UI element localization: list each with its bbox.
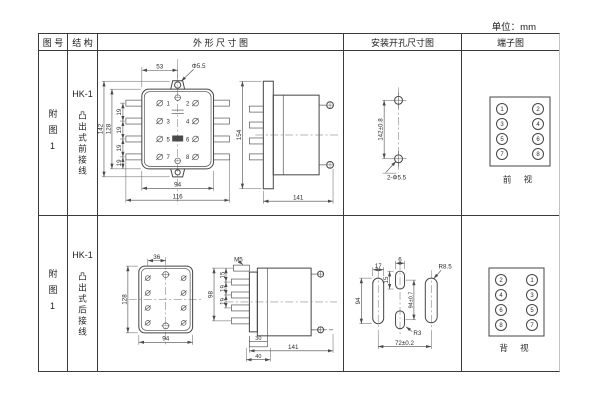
cell-structure-row2: HK-1 凸出式后接线	[68, 216, 98, 371]
dim-pitch: 19	[116, 143, 123, 150]
cell-terminal-row1: 1 2 3 4 5 6 7 8 前 视	[462, 51, 559, 216]
dim-pitch: 19	[116, 158, 123, 165]
dim-cover-outer: 40	[255, 354, 261, 360]
header-structure: 结 构	[68, 34, 98, 51]
dim-side-height: 154	[236, 129, 243, 140]
terminal-cell: 5	[530, 308, 534, 314]
terminal-number: 3	[167, 119, 171, 125]
front-view-terminals: 1 2 3 4 5 6 7 8	[156, 100, 198, 161]
dim-hole-spacing: 94±0.7	[408, 291, 414, 308]
dim-side-depth: 141	[288, 344, 299, 351]
terminal-cell: 6	[536, 137, 540, 143]
mounting-holes: 142±0.8 2-Φ5.5	[378, 87, 407, 181]
dim-outer-height: 142	[98, 123, 105, 134]
mounting-drawing-rear-wiring: 17 94 6 15 94±0.7	[344, 216, 461, 371]
terminal-number: 5	[167, 137, 171, 143]
terminal-diagram-rear: 2 1 4 3 6 5 8 7 背 视	[462, 216, 559, 371]
cell-terminal-row2: 2 1 4 3 6 5 8 7 背 视	[462, 216, 559, 371]
front-view-dimensions: 53 Φ5.5 19 19 19 19 128	[98, 62, 229, 202]
dim-cover-inner: 30	[255, 336, 261, 342]
dim-inner-width: 94	[174, 181, 181, 188]
terminal-cell: 5	[500, 137, 504, 143]
structure-type-label: 凸出式前接线	[77, 111, 89, 177]
dim-hole-width: 6	[398, 257, 402, 264]
header-outline: 外 形 尺 寸 图	[98, 34, 344, 51]
terminal-cell: 2	[499, 278, 503, 284]
view-label: 背 视	[499, 343, 533, 353]
header-fig-no: 图 号	[39, 34, 68, 51]
terminal-number: 4	[186, 119, 190, 125]
terminal-cell: 1	[500, 107, 504, 113]
model-label: HK-1	[72, 89, 93, 99]
outline-drawing-front-wiring: 1 2 3 4 5 6 7 8	[98, 51, 343, 216]
dim-inner-height: 128	[105, 123, 112, 134]
terminal-number: 8	[186, 155, 190, 161]
cell-structure-row1: HK-1 凸出式前接线	[68, 51, 98, 216]
header-terminal: 端子图	[462, 34, 559, 51]
dim-top-width: 53	[156, 63, 163, 70]
rear-side-view: M5 15 19 19 98 30	[207, 257, 337, 362]
mounting-slots: 17 94 6 15 94±0.7	[355, 257, 452, 349]
dim-height: 128	[121, 294, 128, 305]
dim-hole-height: 15	[383, 276, 390, 283]
dim-small-radius: R3	[413, 330, 422, 337]
terminal-cell: 8	[499, 323, 503, 329]
view-label: 前 视	[503, 174, 537, 184]
terminal-box: 2 1 4 3 6 5 8 7 背 视	[489, 268, 544, 353]
dim-width: 94	[162, 336, 169, 343]
dim-stud-pitch: 15	[219, 271, 226, 278]
dim-stud-pitch: 19	[219, 297, 226, 304]
dim-pitch: 19	[116, 126, 123, 133]
terminal-cell: 2	[536, 107, 540, 113]
cell-mounting-row2: 17 94 6 15 94±0.7	[344, 216, 462, 371]
dim-pitch: 19	[116, 108, 123, 115]
cell-mounting-row1: 142±0.8 2-Φ5.5	[344, 51, 462, 216]
cell-fig-no-row2: 附图1	[39, 216, 68, 371]
dim-side-depth: 141	[293, 194, 304, 201]
dim-holes-label: 2-Φ5.5	[387, 174, 407, 181]
terminal-cell: 3	[530, 293, 534, 299]
dim-top-offset: 36	[153, 254, 160, 261]
terminal-number: 2	[186, 101, 190, 107]
terminal-box: 1 2 3 4 5 6 7 8 前 视	[490, 97, 550, 185]
terminal-number: 6	[186, 137, 190, 143]
terminal-cell: 3	[500, 122, 504, 128]
terminal-cell: 7	[500, 152, 504, 158]
dim-slot-width: 17	[375, 263, 382, 270]
model-label: HK-1	[72, 250, 93, 260]
fig-no-label: 附图1	[47, 109, 60, 158]
rear-view-body: 36 128 94	[121, 254, 202, 347]
terminal-number: 7	[167, 155, 171, 161]
cell-outline-row1: 1 2 3 4 5 6 7 8	[98, 51, 344, 216]
dim-outer-width: 116	[173, 193, 184, 200]
outline-drawing-rear-wiring: 36 128 94	[98, 216, 343, 371]
dim-stud-span: 98	[207, 291, 214, 298]
terminal-diagram-front: 1 2 3 4 5 6 7 8 前 视	[462, 51, 559, 216]
terminal-cell: 7	[530, 323, 534, 329]
terminal-cell: 4	[499, 293, 503, 299]
terminal-number: 1	[167, 101, 171, 107]
terminal-cell: 8	[536, 152, 540, 158]
structure-type-label: 凸出式后接线	[77, 272, 89, 338]
header-mounting: 安装开孔尺寸图	[344, 34, 462, 51]
cell-fig-no-row1: 附图1	[39, 51, 68, 216]
cell-outline-row2: 36 128 94	[98, 216, 344, 371]
mounting-drawing-front-wiring: 142±0.8 2-Φ5.5	[344, 51, 461, 216]
dim-horizontal-spacing: 72±0.2	[395, 340, 415, 347]
dim-stud-pitch: 19	[219, 285, 226, 292]
unit-label: 单位：mm	[420, 19, 536, 33]
dim-top-hole: Φ5.5	[192, 62, 206, 69]
dim-thread: M5	[234, 257, 243, 264]
dim-hole-spacing: 142±0.8	[378, 117, 385, 140]
terminal-cell: 4	[536, 122, 540, 128]
terminal-cell: 6	[499, 308, 503, 314]
dim-corner-radius: R8.5	[439, 264, 453, 271]
terminal-cell: 1	[530, 278, 534, 284]
dim-slot-height: 94	[355, 297, 362, 304]
fig-no-label: 附图1	[47, 269, 60, 318]
datasheet-page: 单位：mm 图 号 结 构 外 形 尺 寸 图 安装开孔尺寸图 端子图 附图1 …	[0, 0, 600, 400]
side-view: 154 141	[236, 81, 339, 203]
spec-table: 图 号 结 构 外 形 尺 寸 图 安装开孔尺寸图 端子图 附图1 HK-1 凸…	[38, 33, 560, 372]
